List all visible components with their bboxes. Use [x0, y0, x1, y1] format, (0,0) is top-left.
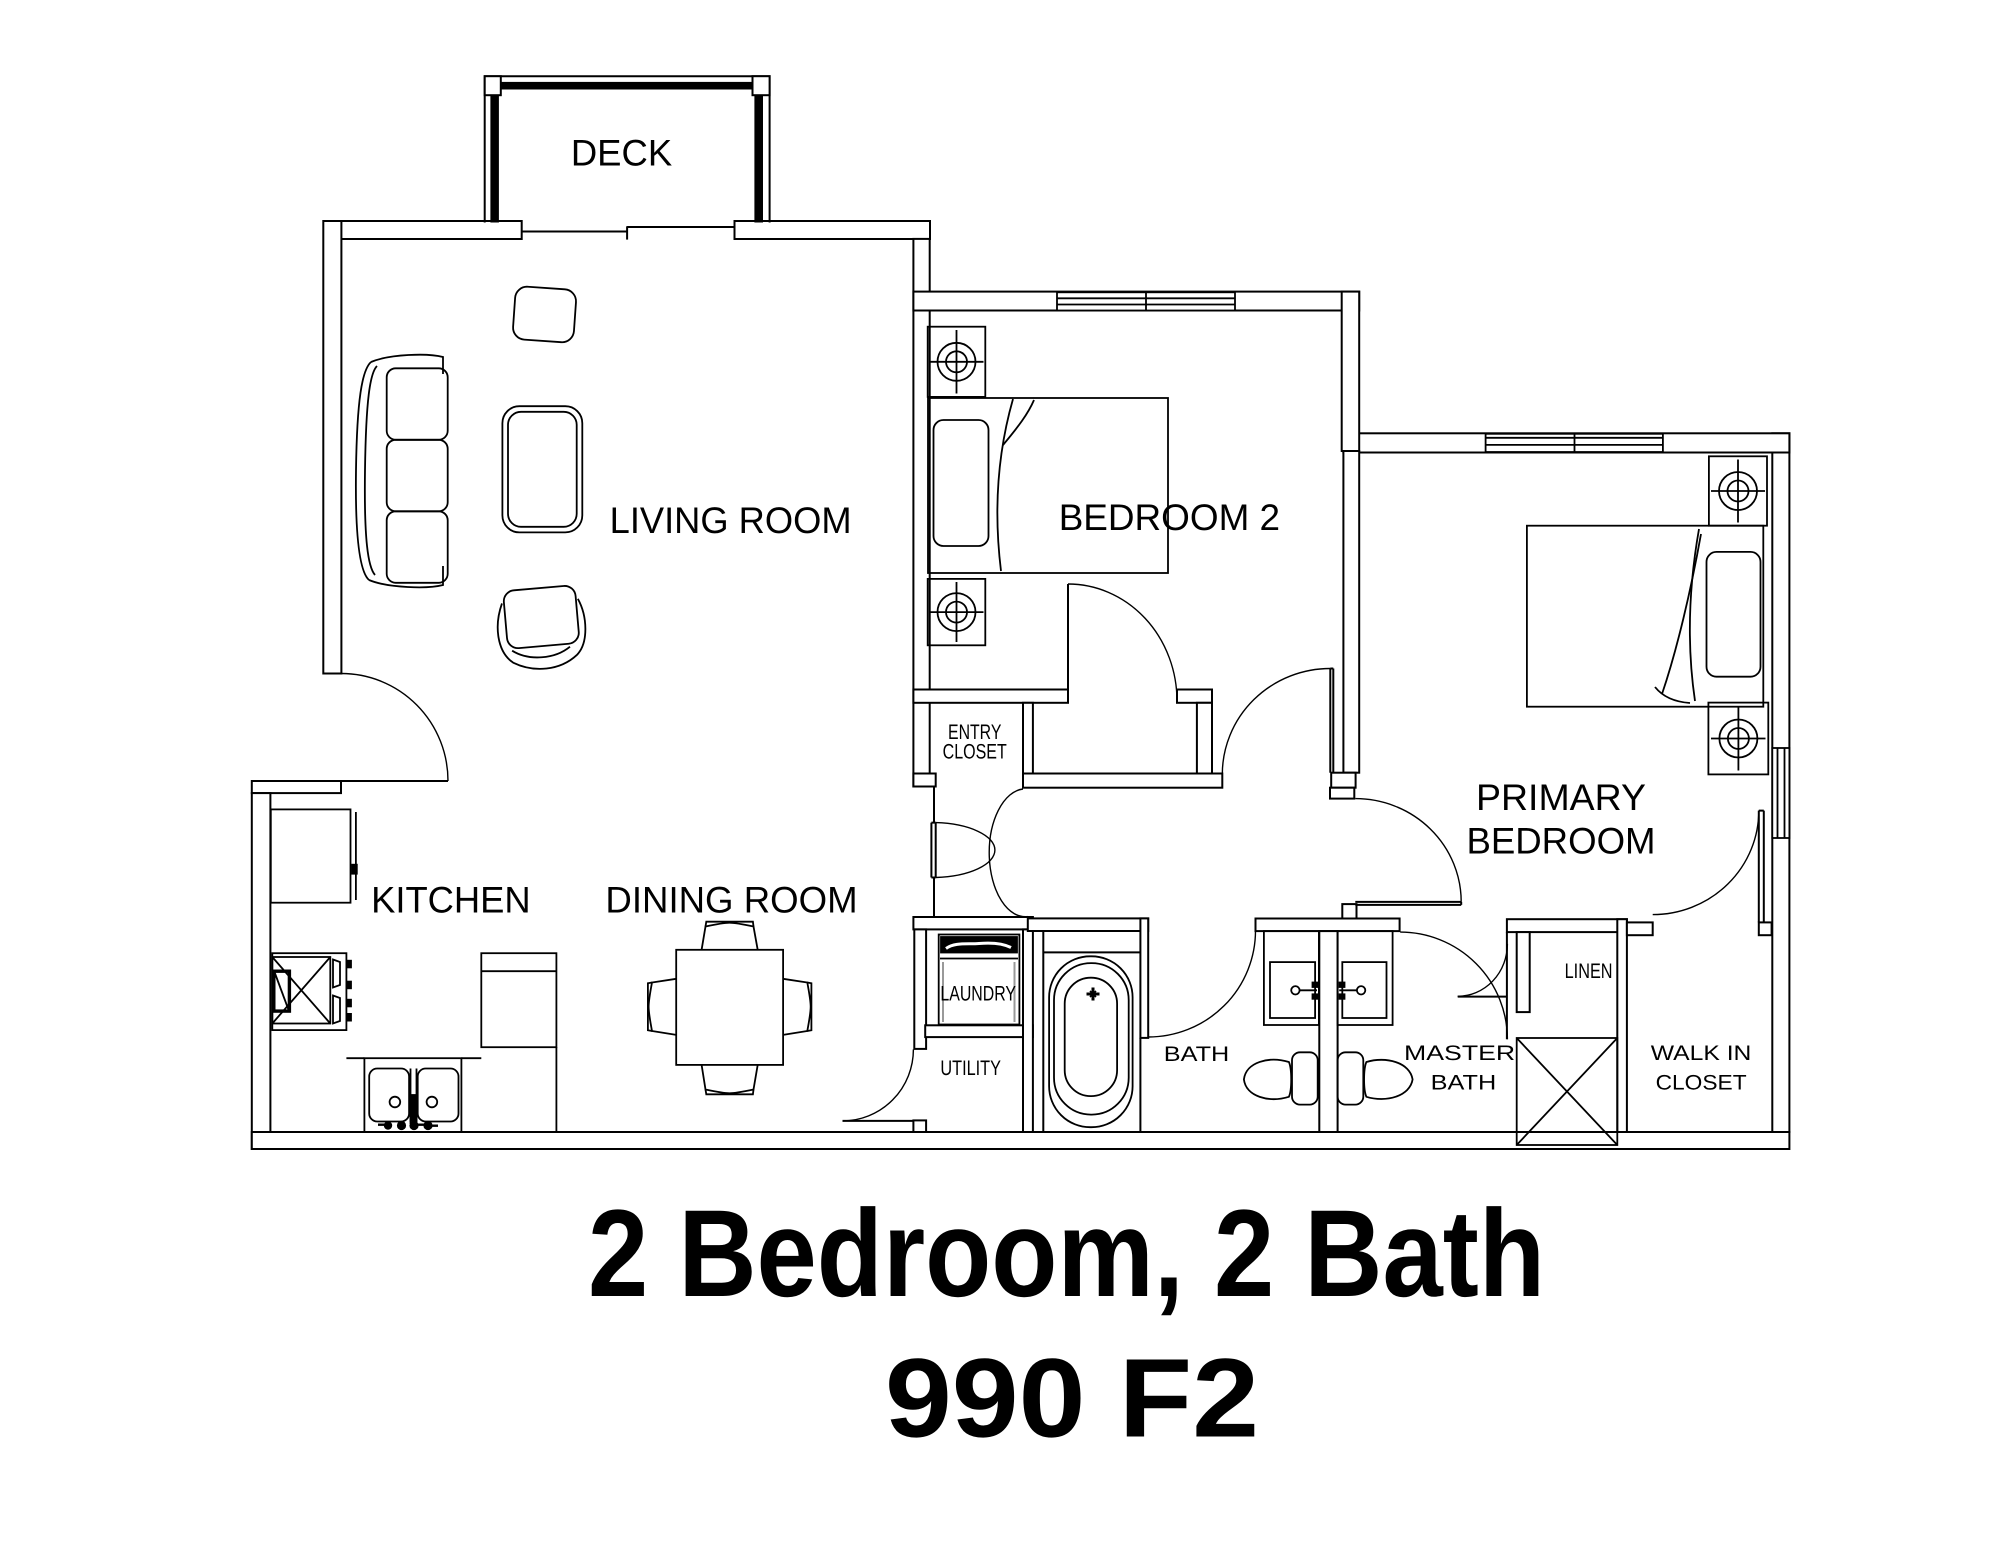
svg-text:PRIMARY: PRIMARY [1476, 777, 1646, 818]
svg-text:UTILITY: UTILITY [940, 1057, 1001, 1080]
svg-text:CLOSET: CLOSET [1656, 1072, 1747, 1095]
svg-text:DECK: DECK [571, 133, 673, 174]
svg-text:LAUNDRY: LAUNDRY [940, 983, 1016, 1006]
svg-text:MASTER: MASTER [1404, 1042, 1515, 1065]
svg-text:BATH: BATH [1164, 1043, 1230, 1066]
svg-text:990 F2: 990 F2 [885, 1336, 1259, 1461]
svg-text:WALK IN: WALK IN [1651, 1042, 1752, 1065]
svg-text:CLOSET: CLOSET [943, 741, 1007, 764]
svg-text:BEDROOM: BEDROOM [1466, 820, 1655, 861]
svg-text:BATH: BATH [1431, 1071, 1497, 1094]
svg-text:2 Bedroom, 2 Bath: 2 Bedroom, 2 Bath [588, 1185, 1545, 1323]
svg-text:KITCHEN: KITCHEN [371, 880, 531, 921]
svg-text:LINEN: LINEN [1565, 960, 1613, 983]
svg-text:DINING ROOM: DINING ROOM [605, 880, 857, 921]
svg-text:BEDROOM 2: BEDROOM 2 [1059, 497, 1280, 538]
svg-text:LIVING ROOM: LIVING ROOM [610, 500, 852, 541]
